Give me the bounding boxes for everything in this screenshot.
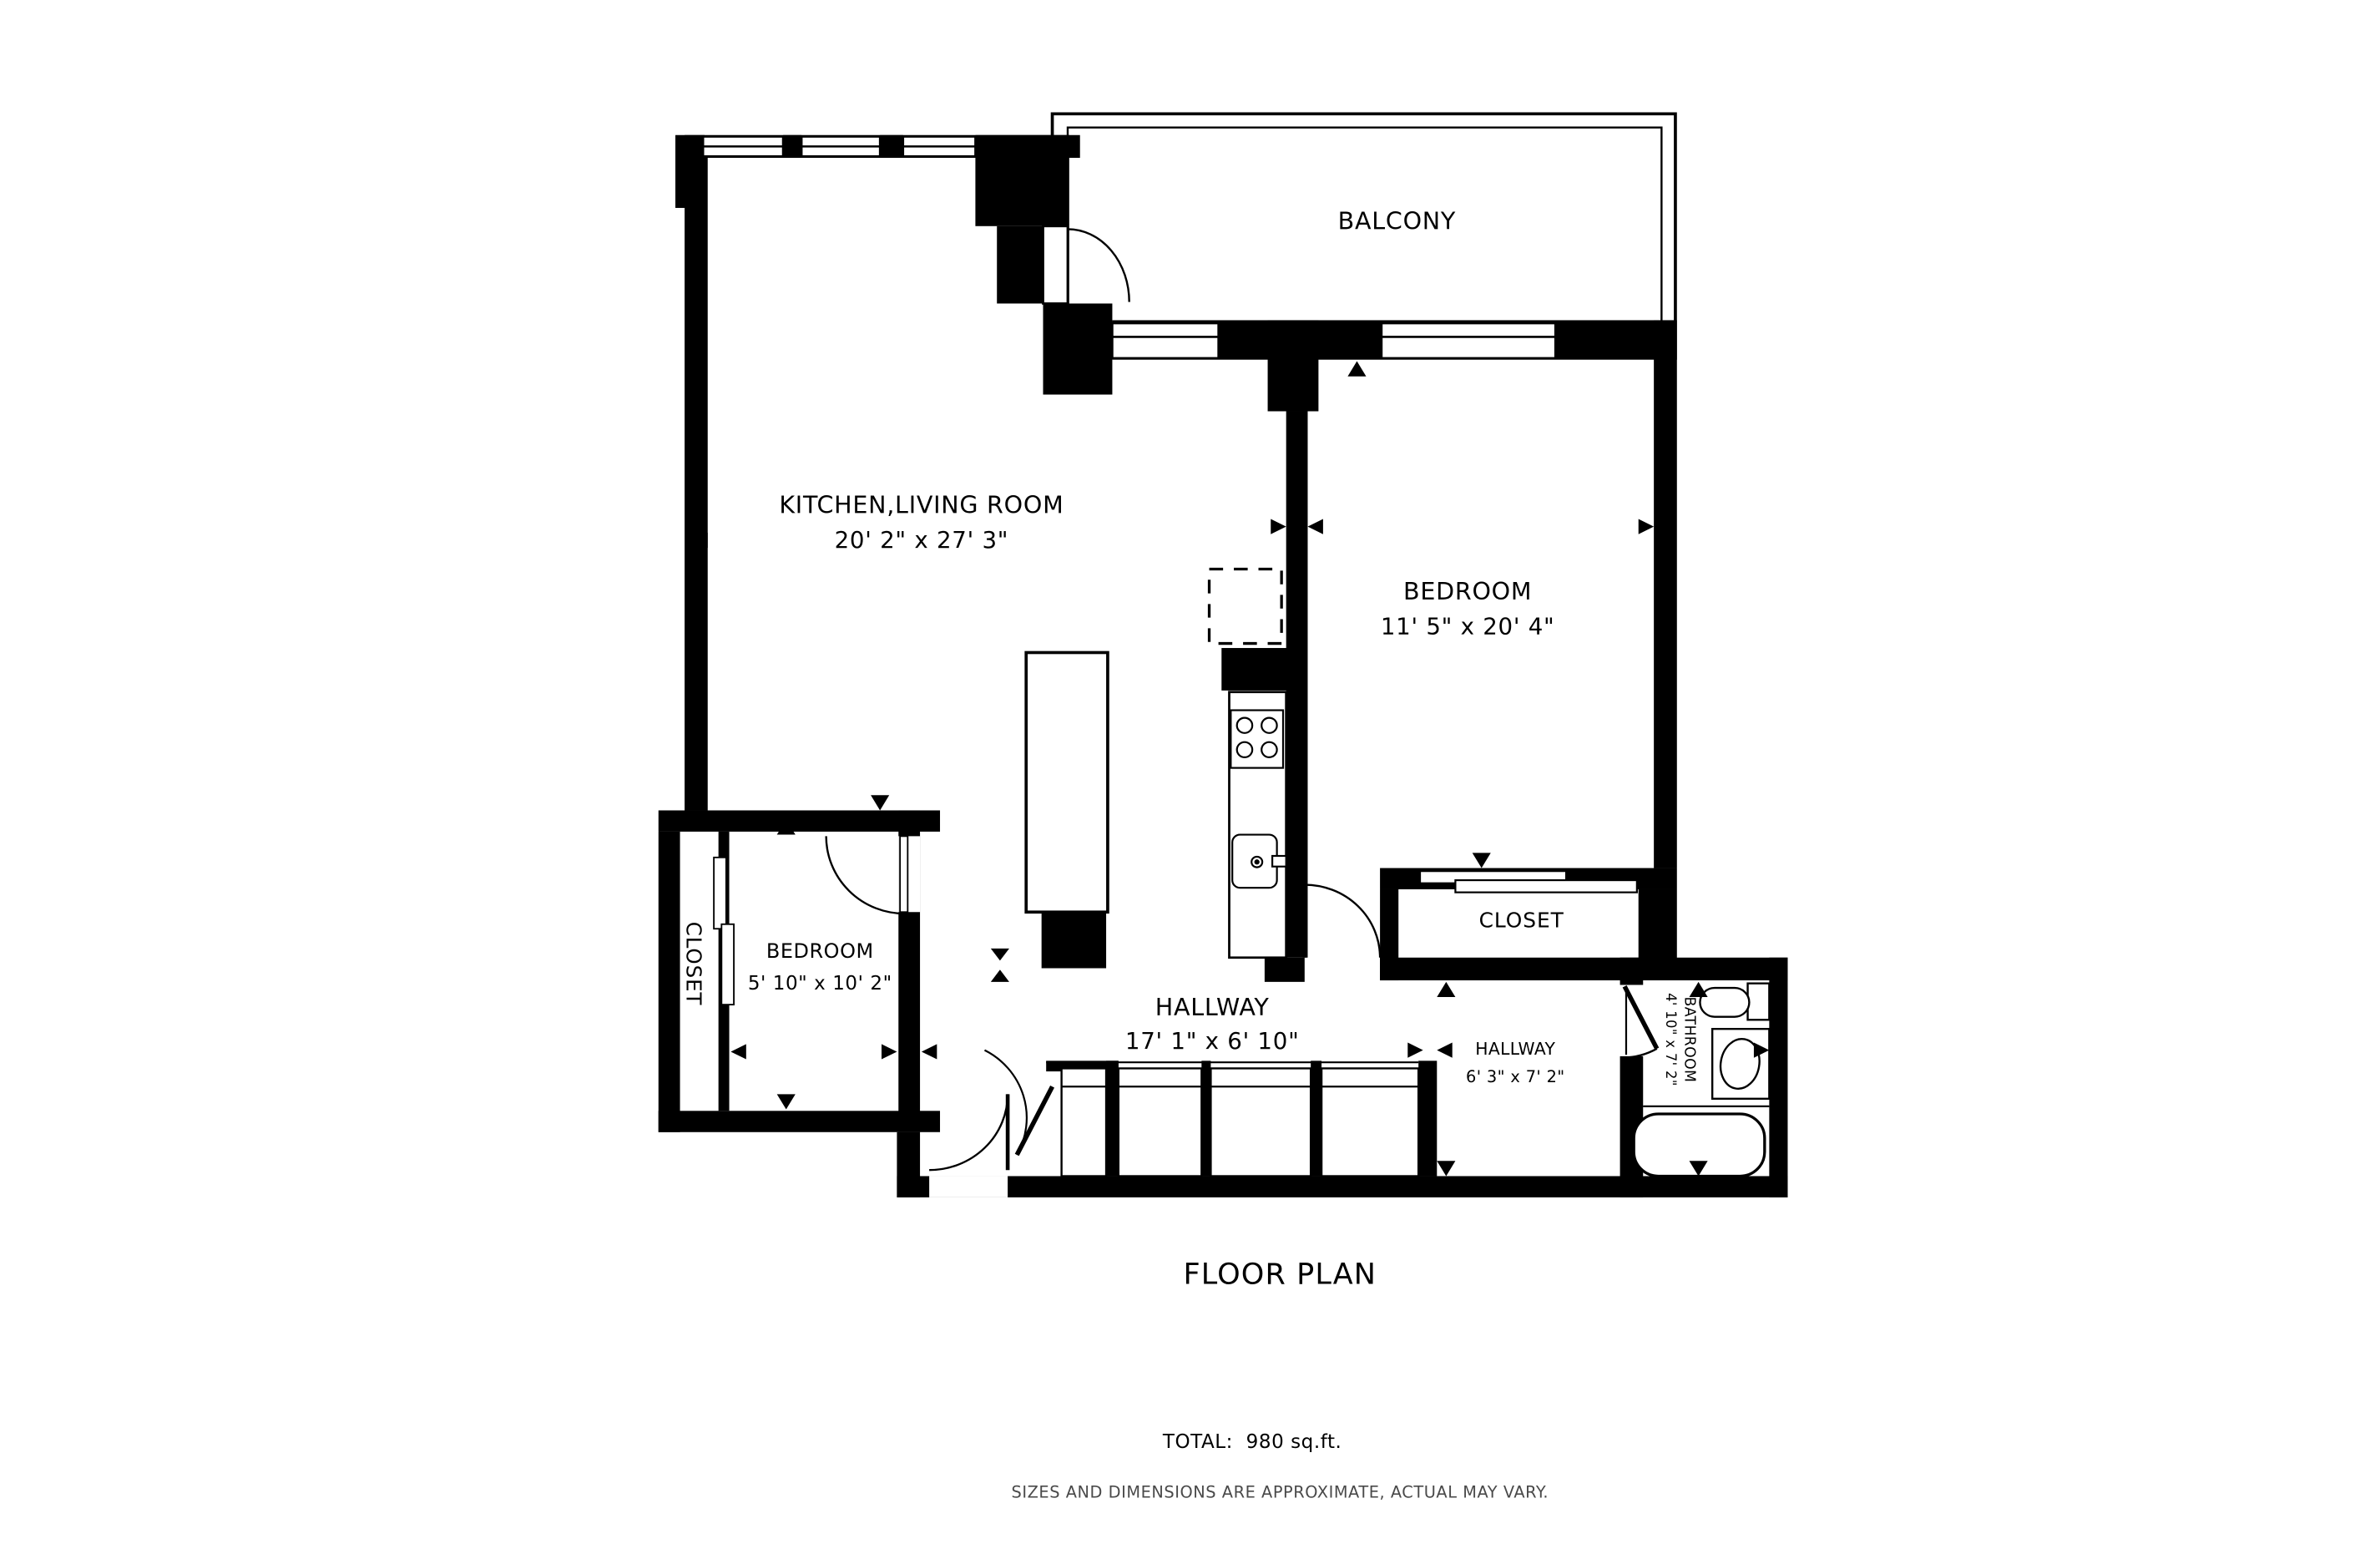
wall: [1286, 412, 1308, 958]
window: [903, 137, 976, 157]
dimension-arrow: [1473, 853, 1491, 868]
refrigerator-dashed: [1210, 569, 1282, 644]
label-hallway-small-name: HALLWAY: [1475, 1039, 1555, 1059]
label-bathroom-dims: 4' 10" x 7' 2": [1663, 993, 1679, 1086]
window: [1112, 323, 1218, 358]
balcony-door: [1043, 226, 1129, 304]
door-arc: [929, 1094, 1008, 1170]
window: [703, 137, 783, 157]
door-arc: [1305, 885, 1380, 958]
entry-opening: [929, 1176, 1008, 1197]
toilet-bowl: [1700, 988, 1749, 1017]
labels: KITCHEN,LIVING ROOM 20' 2" x 27' 3" BALC…: [682, 208, 1698, 1502]
wall: [659, 832, 680, 1132]
dimension-arrow: [922, 1044, 937, 1059]
label-bathroom-name: BATHROOM: [1680, 997, 1697, 1083]
wall: [975, 135, 1069, 226]
door-arc: [1068, 229, 1129, 301]
dimension-arrow: [777, 1094, 796, 1109]
wardrobe-unit: [1062, 1068, 1106, 1176]
wall: [1311, 1060, 1321, 1176]
wall: [1620, 958, 1644, 985]
wall: [1418, 1060, 1437, 1176]
entry-door: [929, 1094, 1008, 1170]
wall: [659, 1111, 940, 1131]
wall: [1042, 912, 1106, 968]
label-bedroom-small-name: BEDROOM: [766, 939, 874, 963]
wall: [1221, 648, 1287, 691]
dimension-arrow: [1690, 982, 1708, 997]
wall: [1265, 958, 1305, 982]
burner: [1237, 742, 1252, 757]
dimension-arrow: [1437, 1043, 1452, 1058]
wall: [1639, 889, 1677, 959]
label-bedroom-small-dims: 5' 10" x 10' 2": [748, 973, 892, 995]
wall: [1106, 1060, 1119, 1176]
floor-plan-drawing: KITCHEN,LIVING ROOM 20' 2" x 27' 3" BALC…: [0, 0, 2380, 1554]
toilet-tank: [1748, 984, 1770, 1020]
bedroom-door: [1305, 885, 1380, 958]
dimension-arrow: [1437, 1161, 1455, 1176]
hall-closet-door: [984, 1050, 1052, 1155]
wall: [659, 810, 940, 831]
dimension-arrow: [991, 969, 1009, 982]
label-bedroom-dims: 11' 5" x 20' 4": [1381, 615, 1555, 640]
disclaimer-note: SIZES AND DIMENSIONS ARE APPROXIMATE, AC…: [1012, 1483, 1549, 1502]
door-arc: [984, 1050, 1026, 1155]
wall: [897, 1176, 1787, 1197]
wall: [783, 135, 801, 158]
dimension-arrow: [1437, 982, 1455, 997]
burner: [1237, 718, 1252, 733]
wall: [1201, 1060, 1210, 1176]
wall: [1380, 958, 1787, 980]
label-closet-right: CLOSET: [1479, 909, 1564, 933]
wardrobe-unit: [1321, 1068, 1418, 1176]
dimension-arrow: [1639, 519, 1654, 534]
wall: [1654, 320, 1677, 868]
dimension-arrow: [730, 1044, 745, 1059]
label-hallway-dims: 17' 1" x 6' 10": [1125, 1029, 1300, 1055]
label-closet-left: CLOSET: [682, 922, 706, 1006]
wall: [1043, 303, 1113, 394]
toilet: [1700, 984, 1769, 1020]
label-hallway-name: HALLWAY: [1155, 994, 1270, 1021]
dimension-arrow: [1271, 519, 1286, 534]
floor-plan-page: KITCHEN,LIVING ROOM 20' 2" x 27' 3" BALC…: [0, 0, 2380, 1554]
wall: [1268, 320, 1319, 411]
door-arc: [826, 836, 905, 914]
washbasin: [1712, 1029, 1769, 1099]
wall: [1769, 958, 1787, 1197]
total-area-label: TOTAL: 980 sq.ft.: [1162, 1431, 1342, 1453]
label-kitchen-living-dims: 20' 2" x 27' 3": [835, 528, 1009, 554]
kitchen-island: [1026, 652, 1108, 912]
stove: [1230, 711, 1283, 768]
wardrobe-units: [1046, 1062, 1418, 1176]
label-kitchen-living-name: KITCHEN,LIVING ROOM: [779, 491, 1064, 519]
dimension-arrow: [991, 949, 1009, 961]
faucet-spout: [1272, 856, 1286, 867]
label-bedroom-name: BEDROOM: [1403, 578, 1532, 605]
label-balcony: BALCONY: [1338, 208, 1456, 235]
wardrobe-unit: [1210, 1068, 1311, 1176]
kitchen-fixtures: [1026, 569, 1286, 958]
wall: [897, 1132, 920, 1197]
burner: [1261, 718, 1276, 733]
dimension-arrow: [871, 795, 889, 810]
label-hallway-small-dims: 6' 3" x 7' 2": [1466, 1067, 1564, 1086]
dimension-arrow: [1307, 519, 1322, 534]
dimension-arrow: [1347, 362, 1366, 377]
bathroom-fixtures: [1634, 984, 1769, 1177]
wall: [685, 158, 708, 810]
window: [801, 137, 880, 157]
window: [1382, 323, 1555, 358]
page-title: FLOOR PLAN: [1184, 1258, 1377, 1292]
dimension-arrow: [882, 1044, 897, 1059]
burner: [1261, 742, 1276, 757]
wall: [880, 135, 903, 158]
dimension-arrow: [1407, 1043, 1422, 1058]
bathroom-door: [1623, 986, 1657, 1057]
bedroom-small-door: [826, 836, 908, 914]
windows: [703, 137, 1555, 358]
wardrobe-unit: [1119, 1068, 1202, 1176]
